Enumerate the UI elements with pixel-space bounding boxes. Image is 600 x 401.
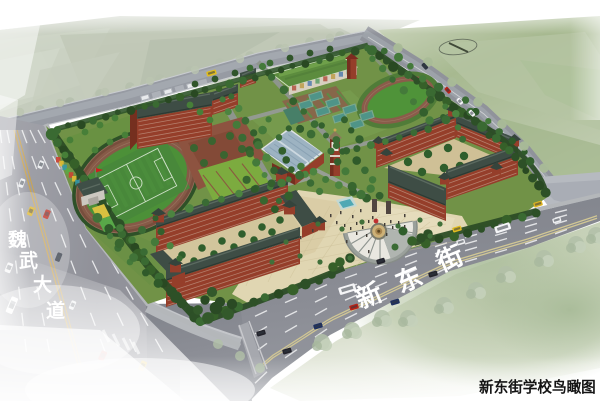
svg-text:大: 大 xyxy=(33,273,52,296)
svg-text:道: 道 xyxy=(46,299,65,322)
svg-text:魏: 魏 xyxy=(7,228,27,251)
svg-text:武: 武 xyxy=(19,250,38,272)
svg-text:新东街学校鸟瞰图: 新东街学校鸟瞰图 xyxy=(479,378,596,396)
